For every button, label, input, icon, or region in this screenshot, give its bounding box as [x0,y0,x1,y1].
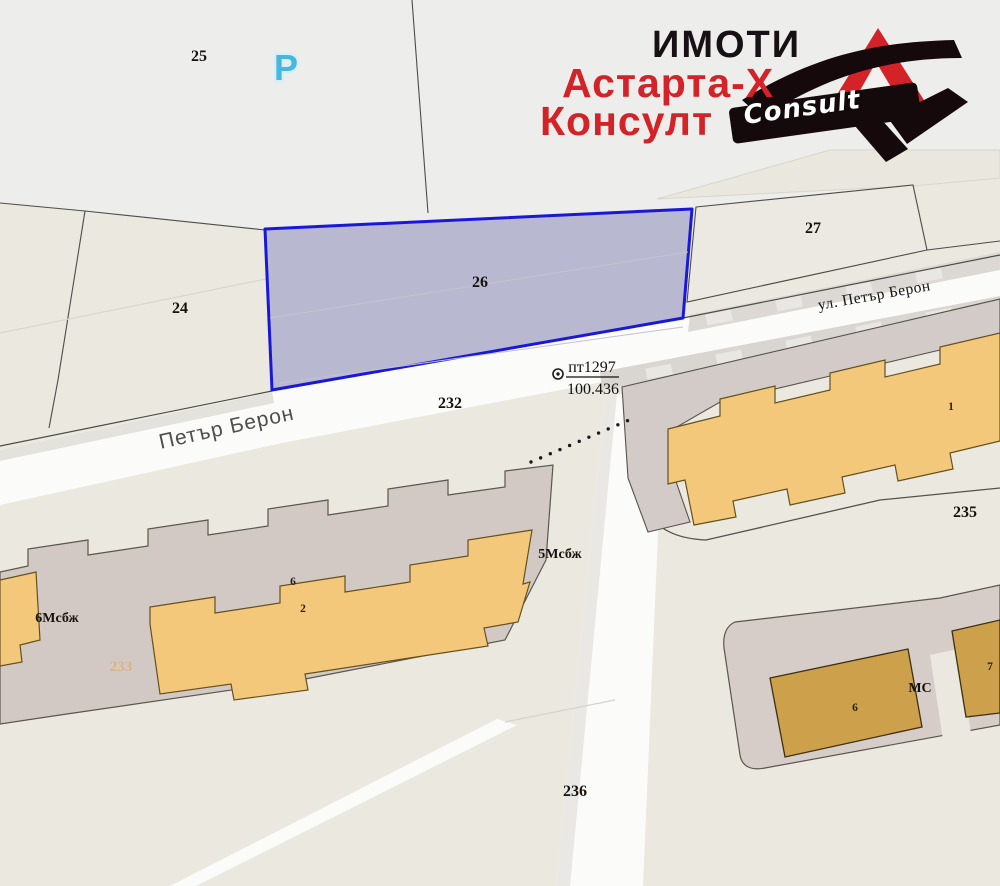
building-label-4: 1 [948,401,954,413]
parcel-label-4: 232 [438,395,462,412]
building-label-2: 6Мсбж [35,611,79,626]
building-label-0: 6 [290,576,296,588]
building-label-1: 2 [300,603,306,615]
building-label-5: 6 [852,702,858,714]
logo-title: ИМОТИ [652,26,801,64]
parcel-label-5: 235 [953,504,977,521]
building-label-3: 5Мсбж [538,547,582,562]
logo-brand-name-2: Консулт [540,101,713,142]
parking-icon: P [274,47,298,88]
building-label-7: 7 [987,661,993,673]
parcel-label-7: 233 [110,659,133,675]
cadastral-map: пт1297 100.436 Петър Берон ул. Петър Бер… [0,0,1000,886]
parcel-label-3: 27 [805,220,821,237]
parcel-label-1: 24 [172,300,188,317]
cadastral-map-page: пт1297 100.436 Петър Берон ул. Петър Бер… [0,0,1000,886]
survey-point-id: пт1297 [568,359,616,376]
survey-point-elevation: 100.436 [567,381,619,398]
parcel-label-0: 25 [191,48,207,65]
parcel-label-6: 236 [563,783,587,800]
building-label-6: МС [908,681,931,696]
parcel-label-2: 26 [472,274,488,291]
